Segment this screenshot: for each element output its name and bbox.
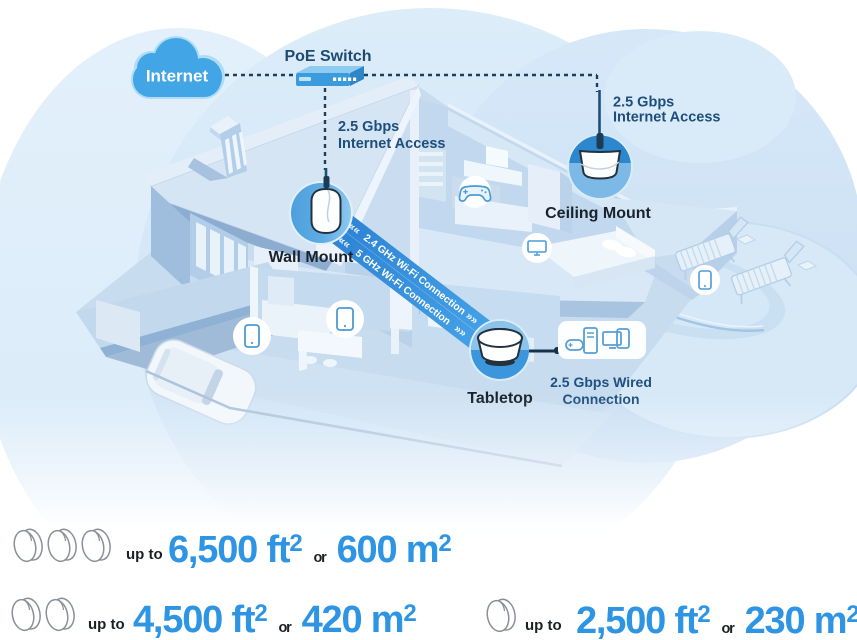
- svg-text:up to: up to: [126, 546, 163, 563]
- svg-text:Ceiling Mount: Ceiling Mount: [545, 205, 651, 222]
- svg-text:PoE Switch: PoE Switch: [284, 48, 371, 65]
- svg-text:up to: up to: [525, 617, 562, 634]
- svg-text:2.5 Gbps: 2.5 Gbps: [613, 95, 674, 111]
- svg-text:up to: up to: [88, 616, 125, 633]
- svg-text:Internet Access: Internet Access: [338, 136, 445, 152]
- svg-text:Wall Mount: Wall Mount: [269, 249, 354, 266]
- svg-text:2.5 Gbps Wired: 2.5 Gbps Wired: [550, 374, 652, 390]
- svg-text:Internet: Internet: [146, 67, 209, 86]
- svg-text:Internet Access: Internet Access: [613, 110, 720, 126]
- svg-text:2.5 Gbps: 2.5 Gbps: [338, 119, 399, 135]
